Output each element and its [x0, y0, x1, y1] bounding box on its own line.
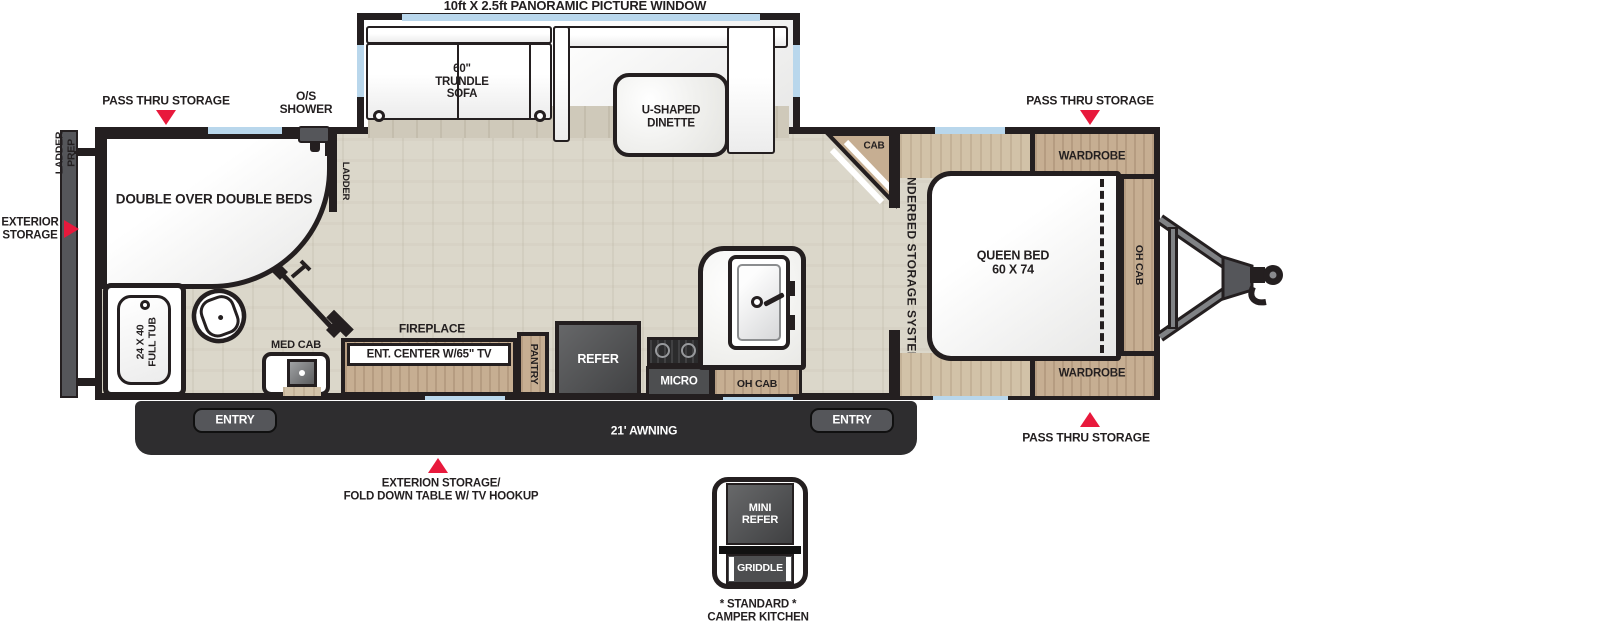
fold-down-table-arrow	[428, 458, 448, 473]
camper-kitchen-counter-bar	[719, 546, 801, 554]
queen-bed-foot-dashed	[1100, 179, 1104, 353]
oh-cab-bedroom-label: OH CAB	[1132, 245, 1144, 285]
sofa-backrest	[366, 26, 552, 44]
bunk-ladder-label: LADDER	[340, 162, 350, 200]
griddle-slot-left	[729, 557, 734, 581]
cab-label: CAB	[863, 141, 884, 152]
burner-left	[655, 343, 670, 358]
pass-thru-top-right-arrow	[1080, 110, 1100, 125]
queen-bed-label: QUEEN BED 60 X 74	[977, 249, 1050, 277]
vanity-base	[283, 387, 321, 396]
vanity-sink-drain	[299, 370, 305, 376]
slideout-window-left	[357, 45, 364, 97]
bumper-connector-bottom	[78, 378, 95, 386]
pass-thru-top-right-label: PASS THRU STORAGE	[1026, 94, 1154, 107]
mini-refer-label: MINI REFER	[742, 502, 778, 526]
fold-down-table-label: EXTERION STORAGE/ FOLD DOWN TABLE W/ TV …	[344, 477, 539, 502]
refer-label: REFER	[577, 353, 618, 367]
double-beds-label: DOUBLE OVER DOUBLE BEDS	[116, 193, 312, 208]
os-shower-label: O/S SHOWER	[280, 90, 333, 116]
bedroom-wall-bottom	[889, 330, 900, 396]
tub-drain	[140, 300, 150, 310]
toilet	[186, 284, 252, 352]
ladder-prep-label: LADDER PREP	[54, 132, 77, 175]
dinette-bench-right	[727, 26, 775, 154]
dinette-label: U-SHAPED DINETTE	[642, 104, 700, 129]
pantry-label: PANTRY	[527, 344, 539, 385]
exterior-storage-label: EXTERIOR STORAGE	[1, 216, 58, 241]
ent-center-label: ENT. CENTER W/65" TV	[367, 349, 492, 362]
fireplace-label: FIREPLACE	[399, 322, 465, 335]
pass-thru-top-left-label: PASS THRU STORAGE	[102, 94, 230, 107]
bunk-ladder-rail	[329, 150, 337, 212]
trundle-sofa-label: 60" TRUNDLE SOFA	[435, 63, 489, 101]
window-top-left	[208, 127, 282, 134]
tongue-hitch	[1157, 205, 1302, 355]
med-cab-label: MED CAB	[271, 339, 321, 351]
sink-bracket-top	[786, 281, 795, 296]
pass-thru-bottom-right-label: PASS THRU STORAGE	[1022, 431, 1150, 444]
bathroom-door	[258, 256, 350, 348]
sink-faucet	[751, 296, 763, 308]
sink-bracket-bottom	[786, 315, 795, 330]
entry-left-label: ENTRY	[215, 413, 254, 426]
underbed-storage-label: UNDERBED STORAGE SYSTEM	[904, 168, 917, 363]
pass-thru-bottom-right-arrow	[1080, 412, 1100, 427]
panoramic-window	[402, 14, 760, 21]
ladder-prep-tick	[74, 151, 102, 154]
dinette-bench-left	[553, 26, 570, 142]
window-top-right	[935, 127, 1005, 134]
burner-right	[681, 343, 696, 358]
bedroom-wall-top	[889, 134, 900, 208]
sofa-recliner-knob-left	[373, 110, 385, 122]
oh-cab-kitchen-label: OH CAB	[737, 379, 777, 391]
exterior-storage-arrow	[64, 220, 79, 238]
micro-label: MICRO	[660, 376, 697, 389]
outside-shower-spout	[310, 143, 320, 152]
awning-label: 21' AWNING	[611, 424, 677, 437]
panoramic-window-label: 10ft X 2.5ft PANORAMIC PICTURE WINDOW	[444, 0, 706, 13]
entry-right-label: ENTRY	[832, 413, 871, 426]
tub-label: 24 X 40 FULL TUB	[135, 317, 158, 367]
griddle-slot-right	[786, 557, 791, 581]
wardrobe-top-label: WARDROBE	[1059, 151, 1126, 164]
rv-floor-plan: 60" TRUNDLE SOFA U-SHAPED DINETTE DOUBLE…	[0, 0, 1600, 626]
sofa-divider-right	[529, 45, 531, 118]
outside-shower-fixture	[298, 126, 330, 143]
slideout-window-right	[793, 45, 800, 97]
griddle-label: GRIDDLE	[737, 563, 783, 575]
camper-kitchen-caption: * STANDARD * CAMPER KITCHEN	[707, 598, 808, 623]
wardrobe-bottom-label: WARDROBE	[1059, 368, 1126, 381]
sofa-recliner-knob-right	[534, 110, 546, 122]
pass-thru-top-left-arrow	[156, 110, 176, 125]
